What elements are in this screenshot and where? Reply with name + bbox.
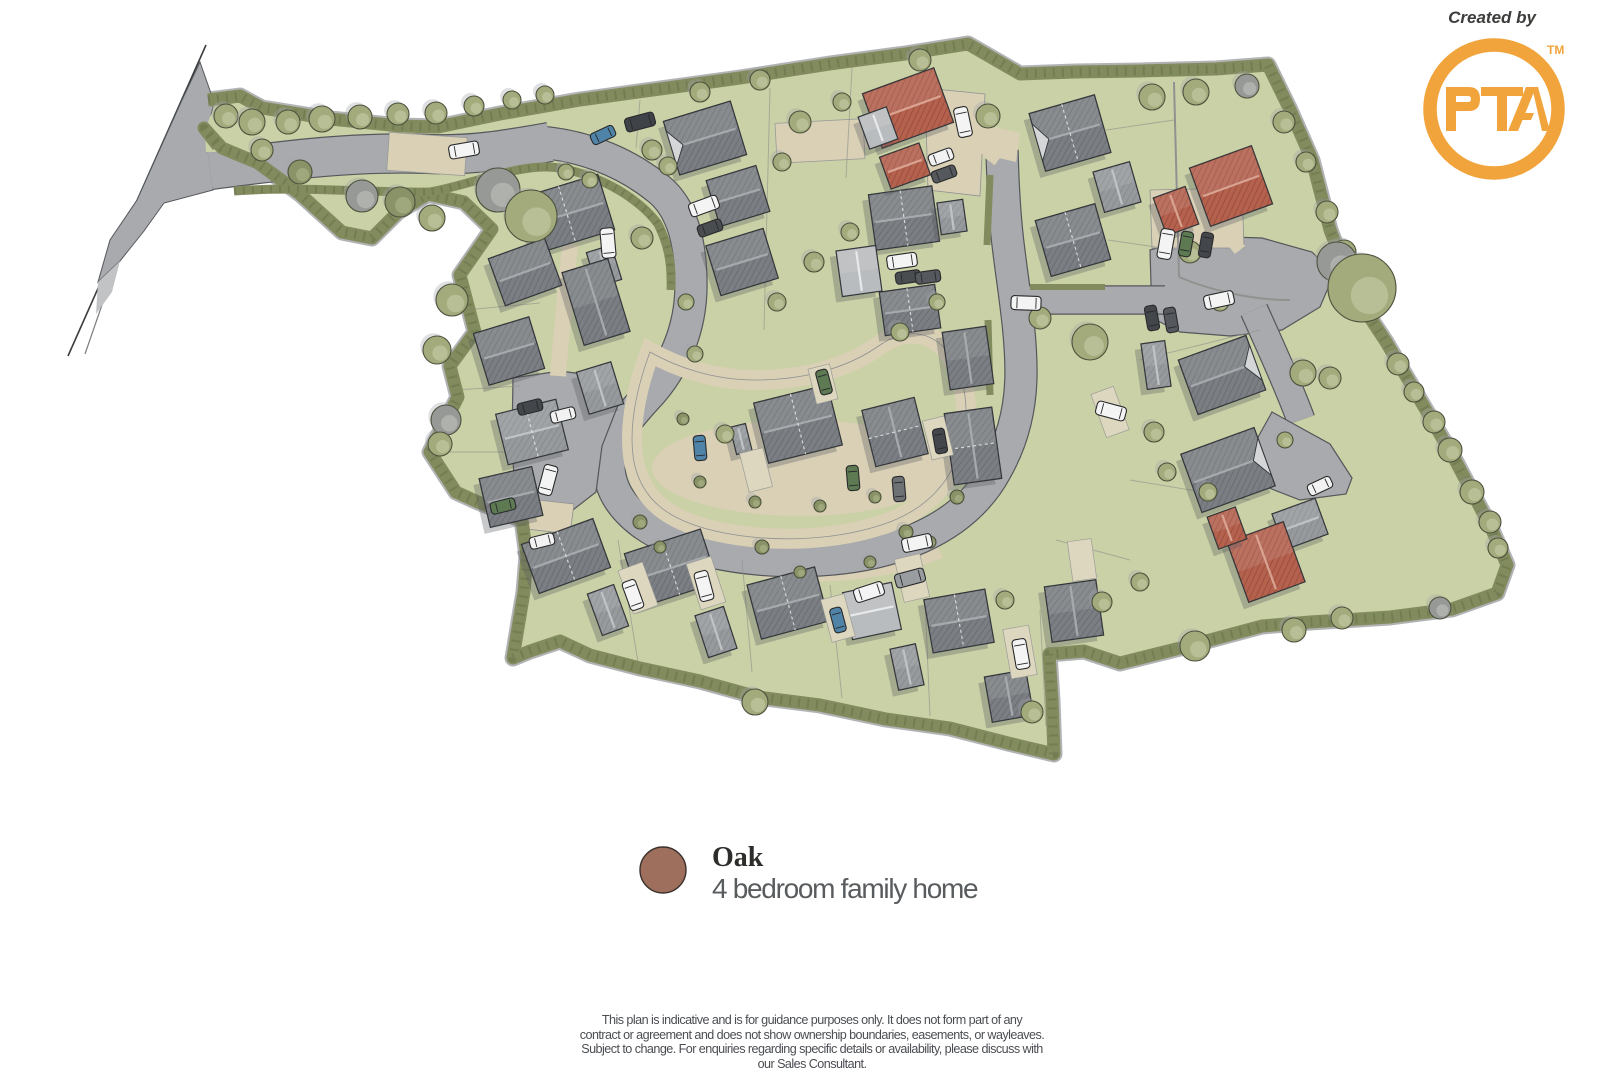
svg-text:contract or agreement and does: contract or agreement and does not show …	[580, 1028, 1044, 1042]
svg-text:Subject to change. For enquiri: Subject to change. For enquiries regardi…	[581, 1042, 1043, 1056]
svg-text:Created by: Created by	[1448, 8, 1537, 27]
svg-text:TM: TM	[1547, 43, 1564, 57]
svg-text:Oak: Oak	[712, 842, 764, 873]
svg-text:This plan is indicative and is: This plan is indicative and is for guida…	[602, 1013, 1023, 1027]
svg-text:our Sales Consultant.: our Sales Consultant.	[758, 1057, 867, 1071]
svg-text:4 bedroom family home: 4 bedroom family home	[712, 873, 978, 904]
